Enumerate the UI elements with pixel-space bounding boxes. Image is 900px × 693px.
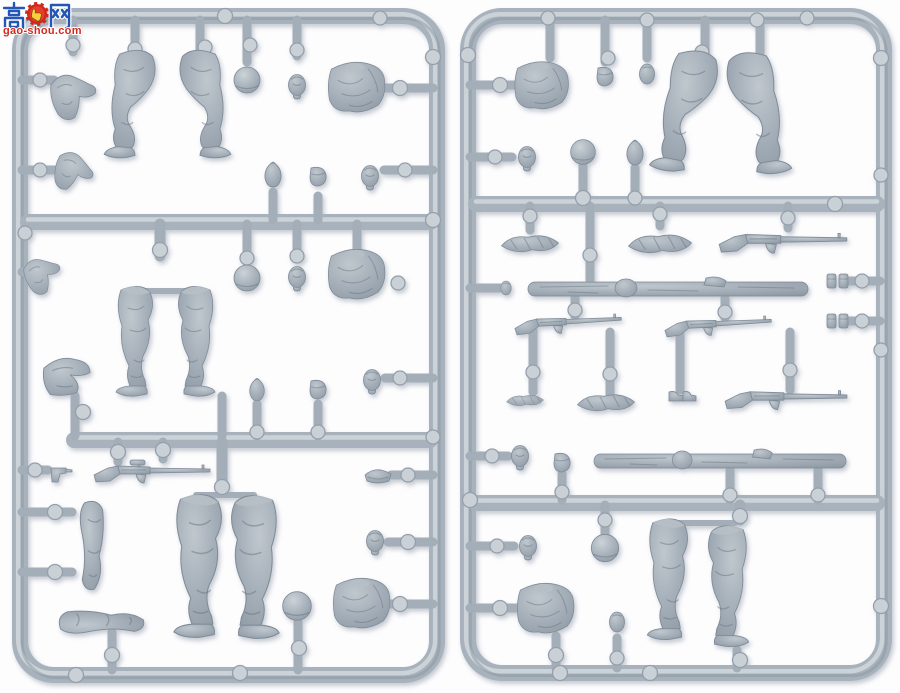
part-leg [708, 526, 748, 647]
part-log [528, 277, 808, 297]
right-sprue-parts [501, 47, 848, 646]
part-leg [647, 519, 687, 640]
part-rifle [725, 391, 847, 410]
part-log [594, 449, 846, 469]
part-pouch [310, 380, 326, 399]
left-sprue-frame [18, 14, 439, 677]
part-head [289, 75, 306, 100]
part-straight-arm [80, 501, 103, 589]
part-rolled-coat [502, 236, 559, 252]
right-sprue [461, 11, 889, 681]
part-torso [515, 62, 569, 109]
part-helmet [234, 265, 260, 291]
part-rolled-coat [629, 235, 692, 253]
part-grenade [501, 281, 512, 295]
part-head [364, 370, 381, 395]
part-canteen [265, 162, 281, 187]
part-head [367, 531, 384, 556]
part-side-cap [365, 470, 391, 483]
part-pouch-pair [827, 314, 848, 328]
watermark: gao-shou.com [3, 3, 82, 37]
part-rolled-coat [578, 395, 635, 411]
part-leg [232, 496, 280, 639]
part-rifle [664, 316, 771, 338]
part-canteen [250, 378, 265, 401]
sprue-photo: gao-shou.com [0, 0, 900, 693]
part-bent-leg [104, 50, 155, 158]
part-grenade [640, 64, 655, 84]
part-pouch [554, 453, 570, 472]
part-helmet [591, 534, 618, 561]
part-leg [174, 495, 222, 638]
part-head [512, 446, 529, 471]
part-helmet [283, 592, 312, 621]
part-sitting-legs [43, 358, 90, 395]
part-pouch-pair [827, 274, 848, 288]
watermark-url: gao-shou.com [3, 25, 82, 37]
part-head [520, 536, 537, 561]
part-bent-leg [726, 50, 792, 176]
part-leg [178, 286, 215, 396]
part-grenade [610, 612, 625, 632]
part-bent-leg [649, 47, 719, 175]
part-torso [328, 62, 385, 112]
part-bent-leg [180, 50, 231, 158]
part-pouch [310, 167, 326, 186]
part-head [519, 147, 536, 172]
part-helmet [234, 67, 260, 93]
part-torso [328, 249, 385, 299]
part-scoped-rifle [94, 460, 210, 483]
part-straight-arm [59, 611, 143, 633]
part-rolled-coat [506, 395, 543, 405]
part-pouch [597, 67, 613, 86]
part-helmet [571, 140, 596, 165]
left-sprue [18, 9, 441, 683]
part-bent-arm [51, 149, 98, 195]
part-head [289, 267, 306, 292]
left-sprue-parts [20, 50, 391, 638]
part-canteen [627, 140, 643, 165]
part-leg [116, 286, 153, 396]
part-head [362, 166, 379, 191]
part-torso [517, 583, 574, 633]
part-rifle [719, 233, 847, 253]
part-pistol [51, 468, 72, 482]
part-torso [333, 578, 390, 628]
